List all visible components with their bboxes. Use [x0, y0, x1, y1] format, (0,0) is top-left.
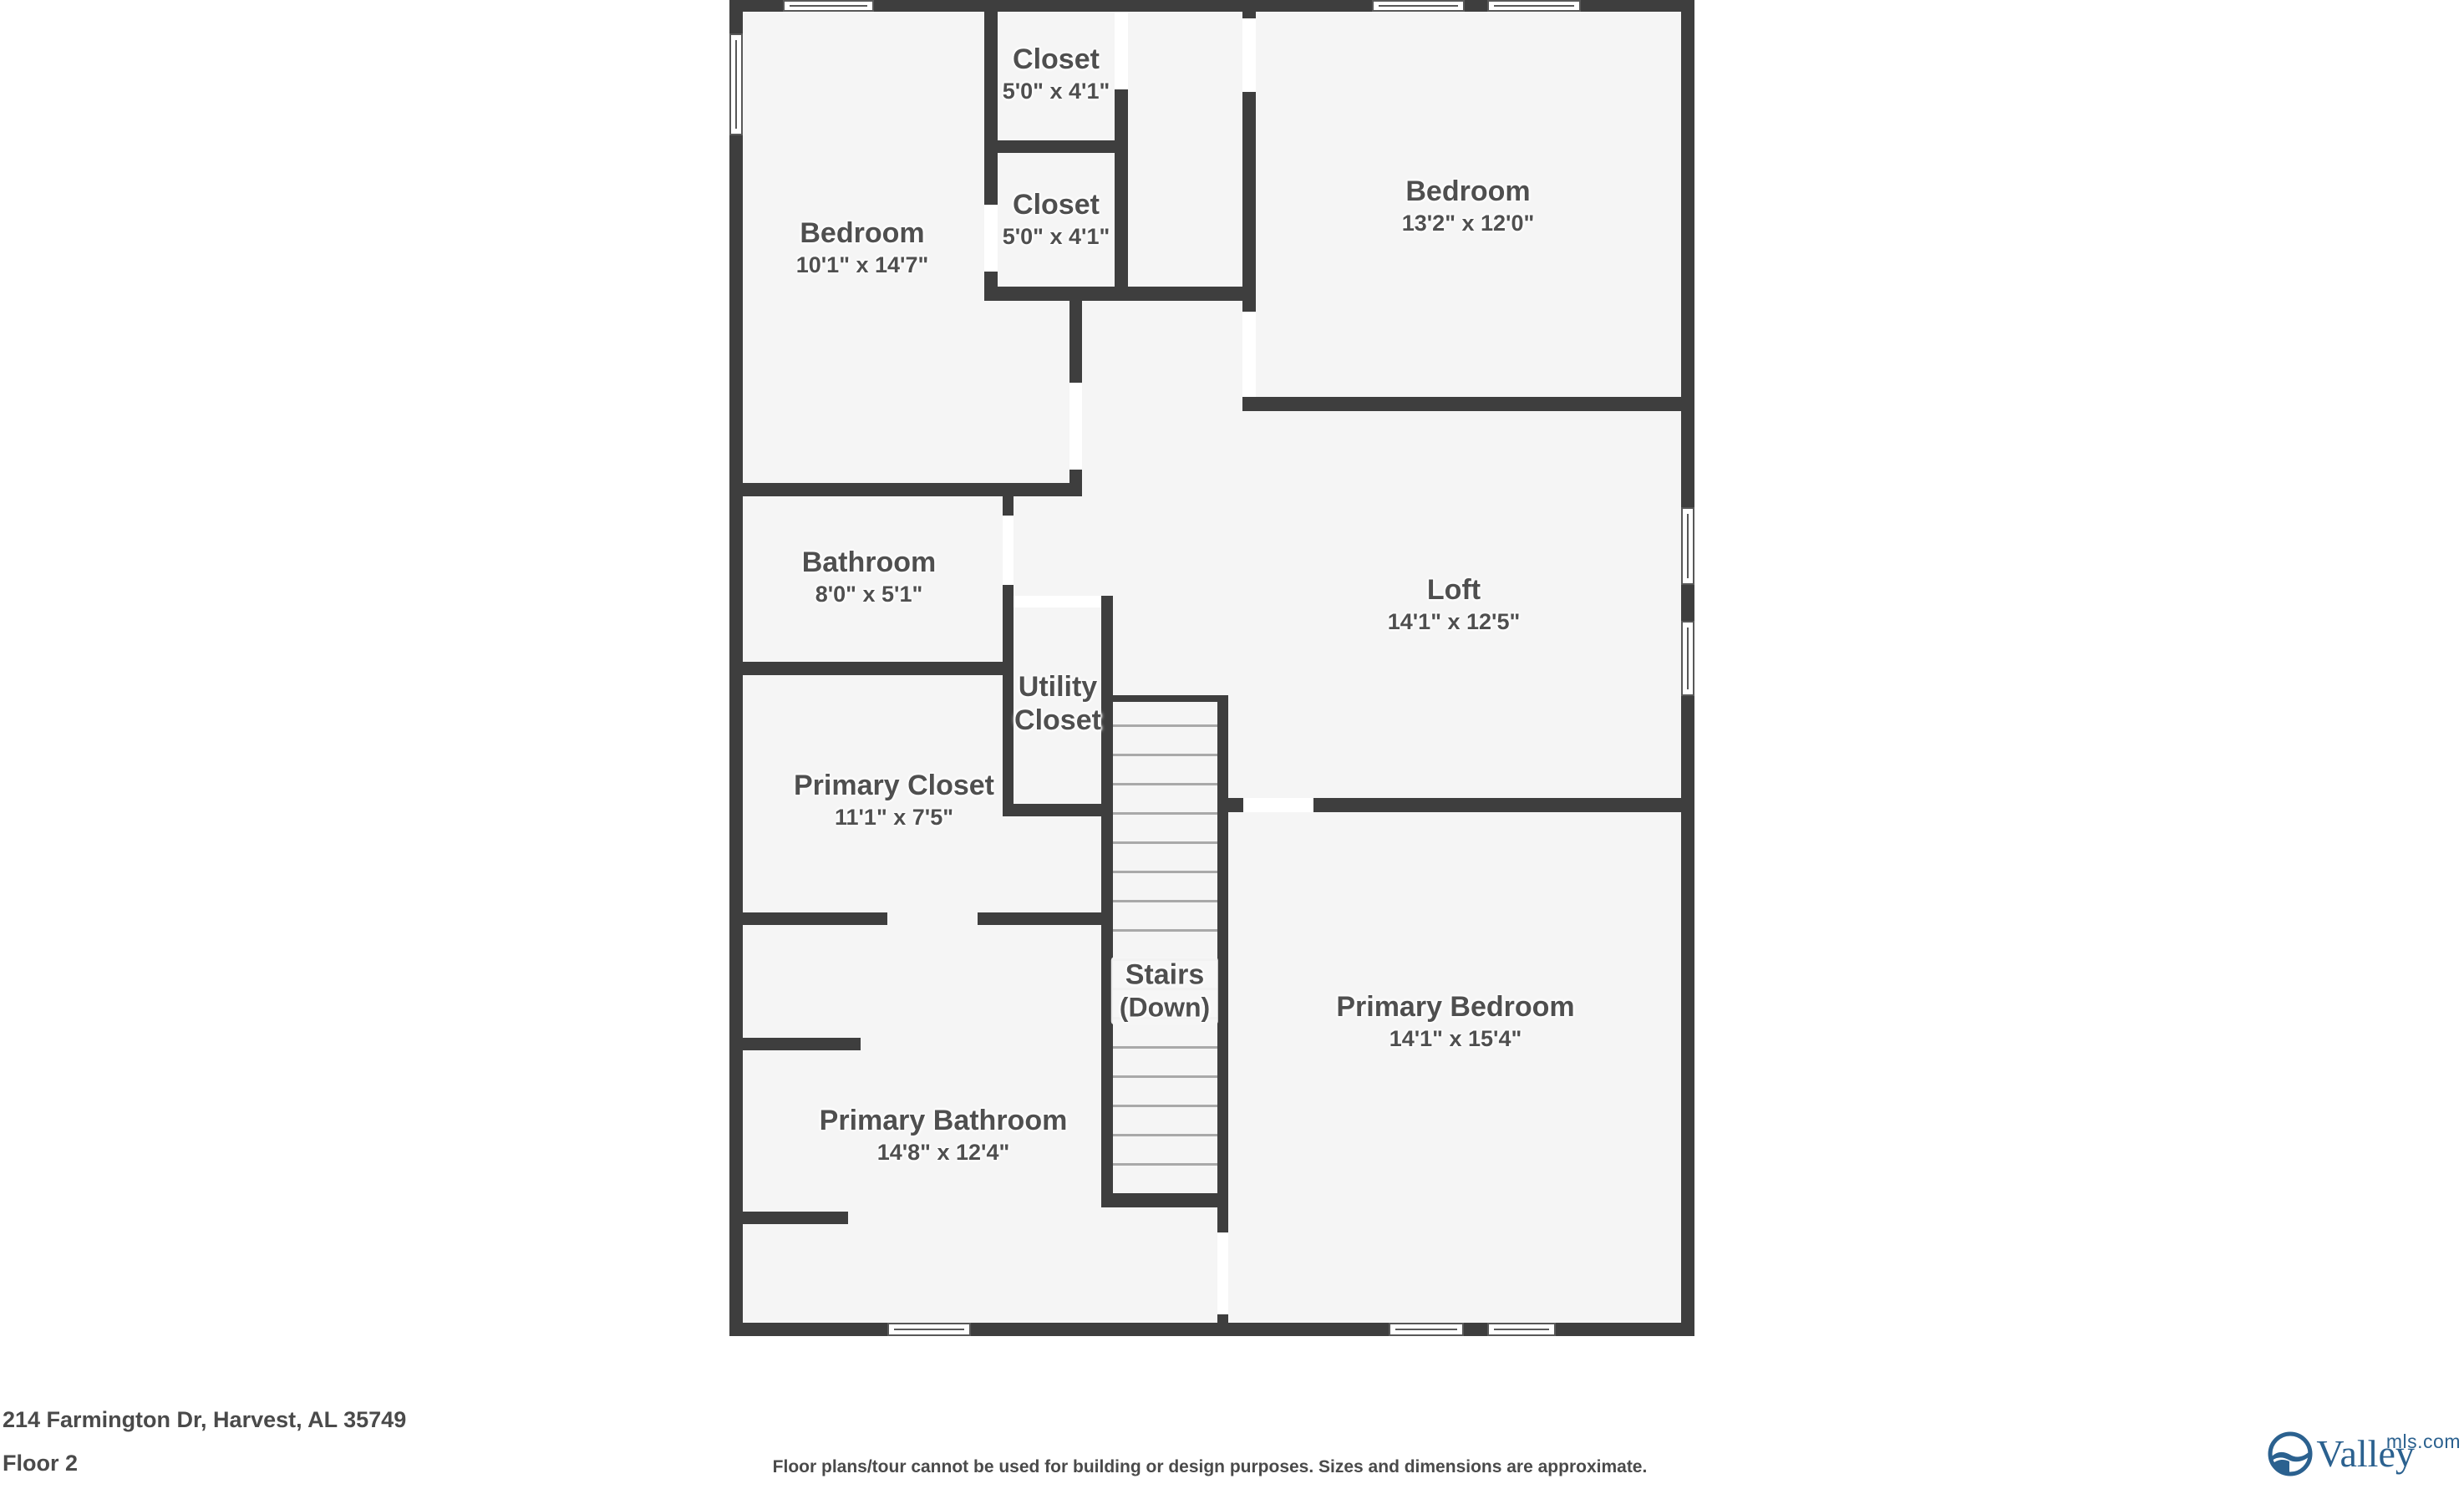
room-name: Closet — [1003, 43, 1110, 76]
room-label-closet-2: Closet5'0" x 4'1" — [1003, 189, 1110, 252]
door-opening — [1014, 596, 1101, 607]
room-name: Closet — [1003, 189, 1110, 221]
wall-segment — [729, 483, 1082, 496]
window — [783, 0, 874, 12]
room-name: Primary Bedroom — [1336, 991, 1574, 1024]
door-opening — [1242, 18, 1256, 92]
stair-tread — [1113, 812, 1217, 815]
room-dimensions: 14'8" x 12'4" — [820, 1137, 1068, 1167]
stair-tread — [1113, 1134, 1217, 1136]
room-label-bedroom-1: Bedroom10'1" x 14'7" — [796, 217, 929, 281]
wall-segment — [1217, 1314, 1228, 1323]
room-label-utility-closet: Utility Closet — [985, 670, 1131, 737]
room-name: Utility Closet — [985, 670, 1131, 737]
floor-label: Floor 2 — [3, 1451, 78, 1476]
room-dimensions: 10'1" x 14'7" — [796, 250, 929, 280]
door-opening — [1242, 312, 1256, 397]
valleymls-logo-icon — [2267, 1431, 2314, 1477]
room-label-primary-closet: Primary Closet11'1" x 7'5" — [794, 770, 994, 833]
door-opening — [984, 205, 998, 272]
room-dimensions: (Down) — [1120, 991, 1210, 1023]
room-name: Primary Bathroom — [820, 1105, 1068, 1137]
stair-tread — [1113, 1163, 1217, 1166]
room-label-stairs: Stairs(Down) — [1111, 957, 1218, 1024]
wall-segment — [1003, 804, 1113, 816]
wall-segment — [729, 662, 1014, 675]
floorplan-canvas: Bedroom10'1" x 14'7"Closet5'0" x 4'1"Clo… — [0, 0, 2464, 1489]
window — [1681, 507, 1694, 585]
room-label-bathroom: Bathroom8'0" x 5'1" — [802, 546, 937, 610]
room-name: Stairs — [1120, 958, 1210, 991]
wall-segment — [1217, 695, 1228, 1232]
wall-segment — [1242, 92, 1256, 312]
disclaimer-text: Floor plans/tour cannot be used for buil… — [773, 1457, 1648, 1477]
room-dimensions: 5'0" x 4'1" — [1003, 76, 1110, 106]
room-name: Loft — [1388, 574, 1521, 607]
stair-tread — [1113, 783, 1217, 785]
wall-segment — [984, 140, 1128, 153]
room-label-bedroom-2: Bedroom13'2" x 12'0" — [1402, 175, 1535, 239]
room-label-primary-bathroom: Primary Bathroom14'8" x 12'4" — [820, 1105, 1068, 1168]
window — [887, 1323, 971, 1336]
room-label-primary-bedroom: Primary Bedroom14'1" x 15'4" — [1336, 991, 1574, 1054]
window — [1487, 0, 1581, 12]
stair-tread — [1113, 754, 1217, 756]
room-name: Primary Closet — [794, 770, 994, 802]
stair-tread — [1113, 1105, 1217, 1107]
wall-segment — [984, 0, 998, 205]
valleymls-logo: Valley mls.com — [2267, 1431, 2461, 1477]
wall-segment — [984, 287, 1251, 301]
window — [1681, 621, 1694, 696]
wall-segment — [978, 912, 1113, 925]
stair-tread — [1113, 1075, 1217, 1078]
wall-segment — [1069, 287, 1082, 383]
door-opening — [1217, 1232, 1228, 1314]
room-name: Bedroom — [1402, 175, 1535, 208]
room-label-closet-1: Closet5'0" x 4'1" — [1003, 43, 1110, 107]
window — [1487, 1323, 1556, 1336]
room-dimensions: 13'2" x 12'0" — [1402, 208, 1535, 238]
wall-segment — [743, 1212, 848, 1224]
door-opening — [1115, 12, 1128, 89]
room-dimensions: 14'1" x 12'5" — [1388, 607, 1521, 637]
window — [1372, 0, 1465, 12]
room-dimensions: 8'0" x 5'1" — [802, 579, 937, 609]
window — [1389, 1323, 1464, 1336]
wall-segment — [1217, 798, 1243, 812]
stair-tread — [1113, 871, 1217, 873]
logo-suffix: mls.com — [2386, 1431, 2461, 1453]
stair-tread — [1113, 900, 1217, 902]
room-dimensions: 14'1" x 15'4" — [1336, 1024, 1574, 1054]
wall-segment — [743, 1038, 861, 1050]
wall-segment — [1242, 0, 1256, 18]
door-opening — [1069, 383, 1082, 470]
door-opening — [1243, 798, 1313, 812]
room-name: Bathroom — [802, 546, 937, 579]
stair-tread — [1113, 929, 1217, 932]
window — [729, 33, 743, 135]
room-dimensions: 11'1" x 7'5" — [794, 802, 994, 832]
wall-segment — [1313, 798, 1694, 812]
wall-segment — [1115, 89, 1128, 301]
room-dimensions: 5'0" x 4'1" — [1003, 221, 1110, 252]
address-text: 214 Farmington Dr, Harvest, AL 35749 — [3, 1407, 406, 1433]
room-label-loft: Loft14'1" x 12'5" — [1388, 574, 1521, 638]
room-name: Bedroom — [796, 217, 929, 250]
stair-tread — [1113, 841, 1217, 844]
wall-segment — [1242, 397, 1694, 411]
wall-segment — [743, 912, 887, 925]
wall-segment — [1003, 496, 1014, 516]
stair-tread — [1113, 1046, 1217, 1049]
door-opening — [1003, 516, 1014, 585]
wall-segment — [1101, 1193, 1228, 1207]
